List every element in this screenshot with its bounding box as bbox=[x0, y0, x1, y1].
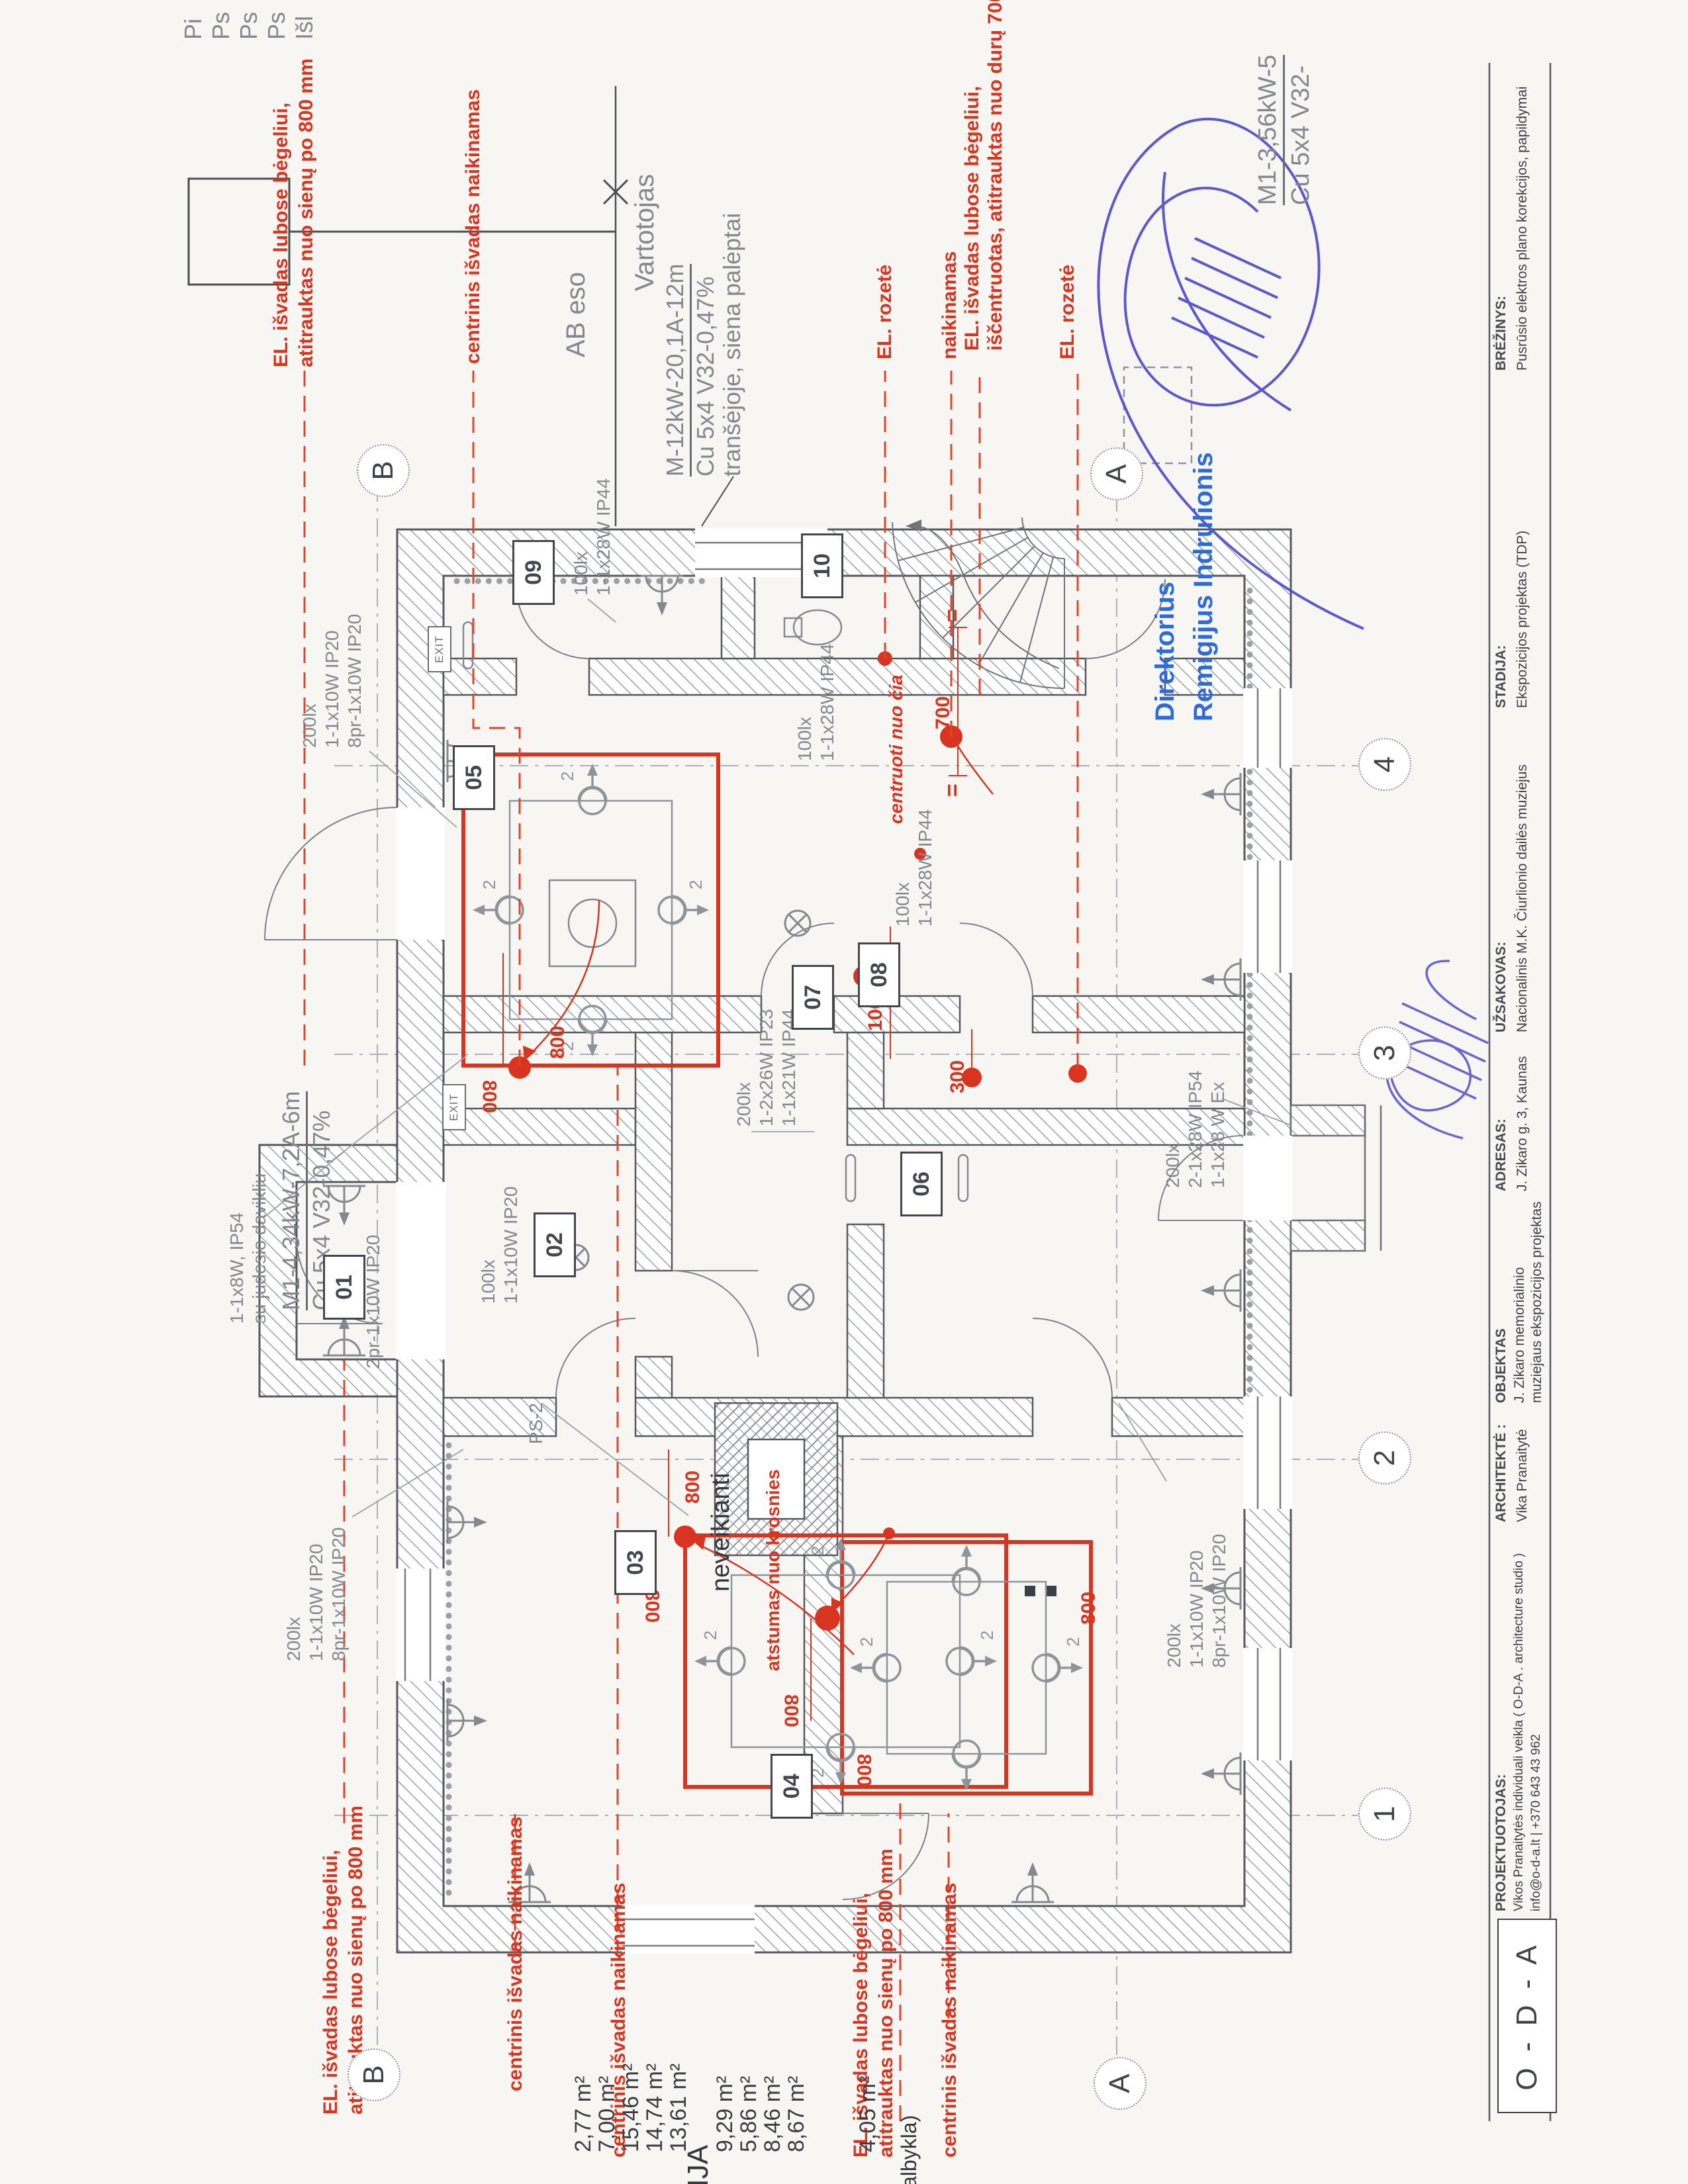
grid-bubble-4: 4 bbox=[1358, 738, 1411, 791]
scanned-drawing-page: 22 22 22 22 22 bbox=[0, 0, 1688, 2184]
oda-logo: O - D - A bbox=[1497, 1919, 1557, 2113]
dim-700: 700 bbox=[932, 696, 955, 729]
svg-text:2: 2 bbox=[479, 880, 499, 889]
tb-stadija-value: Ekspozicijos projektas (TDP) bbox=[1515, 531, 1530, 708]
stove-disabled-label: neveikianti bbox=[707, 1473, 735, 1592]
vestibule-lamp-label: 2pr-1x10W IP20 bbox=[363, 1235, 383, 1369]
area-row: 8,67 m² bbox=[784, 2076, 809, 2152]
red-leader-arcs bbox=[0, 743, 993, 2184]
lighting-label: 200lx bbox=[1164, 1623, 1184, 1668]
room-number-01: 01 bbox=[323, 1255, 365, 1320]
floor-plan-drawing: 22 22 22 22 22 bbox=[0, 0, 1688, 2184]
note-rozete-2: EL. rozetė bbox=[1056, 265, 1079, 359]
feeder-m2-1: M1-3,56kW-5 bbox=[1254, 55, 1282, 205]
feeder-m1-1: M1-4,34kW-7,2A-6m bbox=[278, 1091, 305, 1310]
feeder-m2-2: Cu 5x4 V32- bbox=[1287, 66, 1315, 205]
svg-text:2: 2 bbox=[700, 1631, 720, 1640]
motion-lamp-label-1: 1-1x8W, IP54 bbox=[226, 1212, 247, 1324]
lighting-label: 1-1x28W IP44 bbox=[817, 644, 837, 761]
lighting-label: 200lx bbox=[283, 1617, 304, 1661]
room-number-02: 02 bbox=[534, 1212, 576, 1277]
dim-800: 800 bbox=[547, 1026, 569, 1059]
lighting-label: 1-1x10W IP20 bbox=[306, 1544, 326, 1661]
lighting-label: 1-1x28W IP44 bbox=[915, 809, 935, 927]
tb-uzsakovas-label: UŽSAKOVAS: bbox=[1493, 942, 1509, 1032]
room-number-05: 05 bbox=[453, 745, 495, 810]
tb-brezinys-label: BRĖŽINYS: bbox=[1493, 296, 1509, 371]
grid-bubble-a-right: A bbox=[1090, 447, 1143, 500]
dim-eq: = bbox=[940, 609, 965, 622]
tb-projektuotojas-label: PROJEKTUOTOJAS: bbox=[1493, 1774, 1509, 1911]
lighting-label: 1-2x26W IP23 bbox=[756, 1009, 776, 1126]
tb-objektas-value2: muziejaus ekspozicijos projektas bbox=[1529, 1201, 1545, 1403]
note-rail-top-1: EL. išvadas lubose bėgeliui, bbox=[270, 103, 293, 367]
svg-text:2: 2 bbox=[686, 880, 706, 889]
stamp-name: Remigijus Indrulionis bbox=[1189, 452, 1219, 721]
grid-bubble-a-left: A bbox=[1094, 2057, 1147, 2110]
room-number-07: 07 bbox=[792, 965, 834, 1030]
note-central-left-1: centrinis išvadas naikinamas bbox=[504, 1817, 527, 2091]
tb-adresas-label: ADRESAS: bbox=[1493, 1118, 1509, 1191]
area-row: 8,46 m² bbox=[760, 2076, 785, 2152]
lighting-label: 200lx bbox=[299, 704, 320, 748]
lighting-label: 8pr-1x10W IP20 bbox=[1209, 1534, 1229, 1668]
room-number-09: 09 bbox=[512, 540, 555, 605]
note-rozete-1: EL. rozetė bbox=[874, 265, 896, 359]
note-rail2-1: EL. išvadas lubose bėgeliui, bbox=[961, 86, 984, 351]
area-row: 7,00 m² bbox=[594, 2076, 620, 2152]
note-rail2-2: iščentruotas, atitrauktas nuo durų 700 m… bbox=[984, 0, 1007, 351]
dim-800: 800 bbox=[478, 1080, 500, 1113]
label-vartotojas: Vartotojas bbox=[630, 174, 660, 291]
room-name-cut: albykla) bbox=[898, 2115, 921, 2184]
area-row: 5,86 m² bbox=[736, 2076, 761, 2152]
grid-bubble-1: 1 bbox=[1358, 1788, 1411, 1841]
note-naikinamas: naikinamas bbox=[939, 251, 961, 359]
lighting-label: 8pr-1x10W IP20 bbox=[344, 614, 365, 748]
porch bbox=[1291, 1105, 1381, 1251]
grid-bubble-2: 2 bbox=[1358, 1432, 1411, 1484]
note-rail-top-2: atitrauktas nuo sienų po 800 mm bbox=[295, 58, 318, 367]
area-row: 15,46 m² bbox=[618, 2064, 643, 2152]
note-centruoti: centruoti nuo čia bbox=[886, 674, 906, 824]
room-number-04: 04 bbox=[771, 1754, 813, 1819]
lighting-label: 200lx bbox=[1162, 1144, 1183, 1188]
area-row: 13,61 m² bbox=[666, 2064, 691, 2152]
dim-800: 800 bbox=[780, 1694, 802, 1727]
lighting-label: 100lx bbox=[478, 1259, 498, 1304]
lighting-label: 1-1x28W IP44 bbox=[593, 478, 614, 596]
grid-bubble-b-right: B bbox=[357, 444, 410, 497]
tb-brezinys-value: Pusrūsio elektros plano korekcijos, papi… bbox=[1515, 86, 1530, 371]
room-number-06: 06 bbox=[900, 1152, 943, 1216]
svg-text:2: 2 bbox=[977, 1631, 997, 1640]
room-number-08: 08 bbox=[858, 942, 900, 1007]
svg-text:2: 2 bbox=[857, 1637, 876, 1647]
note-rail-left-1: EL. išvadas lubose bėgeliui, bbox=[320, 1850, 342, 2115]
tb-architekte-label: ARCHITEKTĖ : bbox=[1493, 1424, 1509, 1522]
tb-stadija-label: STADIJA: bbox=[1493, 645, 1509, 708]
legend-cut-item: Ps bbox=[208, 12, 234, 40]
legend-cut-item: Ps bbox=[236, 12, 262, 40]
area-row: 14,74 m² bbox=[642, 2064, 667, 2152]
grid-bubble-b-left: B bbox=[348, 2048, 400, 2101]
dim-800: 800 bbox=[853, 1754, 875, 1787]
room-number-03: 03 bbox=[614, 1530, 657, 1595]
drawing-sheet: 22 22 22 22 22 bbox=[0, 0, 1688, 2184]
tb-architekte-value: Vika Pranaitytė bbox=[1515, 1429, 1530, 1522]
tb-objektas-label: OBJEKTAS bbox=[1493, 1328, 1509, 1403]
legend-cut-item: Išl bbox=[291, 16, 318, 40]
tb-uzsakovas-value: Nacionalinis M.K. Čiurlionio dailės muzi… bbox=[1515, 764, 1530, 1032]
note-atstumas: atstumas nuo krosnies bbox=[763, 1469, 783, 1671]
legend-cut-item: Ps bbox=[263, 12, 290, 40]
lighting-label: 1-1x10W IP20 bbox=[322, 631, 342, 748]
lighting-label: 100lx bbox=[571, 551, 591, 596]
lighting-label: 8pr-1x10W IP20 bbox=[328, 1527, 349, 1661]
area-row: 9,29 m² bbox=[712, 2076, 737, 2152]
lighting-label: 1-1x10W IP20 bbox=[1186, 1551, 1207, 1668]
dim-eq: = bbox=[940, 784, 965, 797]
tb-objektas-value1: J. Zikaro memorialinio bbox=[1512, 1267, 1528, 1403]
lighting-label: 1-1x10W IP20 bbox=[500, 1187, 521, 1304]
dim-300: 300 bbox=[947, 1060, 969, 1093]
feeder-main-2: Cu 5x4 V32-0,47% bbox=[692, 277, 719, 477]
dim-800: 800 bbox=[682, 1471, 704, 1504]
stamp-role: Direktorius bbox=[1150, 582, 1180, 721]
area-row: 2,77 m² bbox=[571, 2076, 596, 2152]
tb-projektuotojas-value2: info@o-d-a.lt | +370 643 43 962 bbox=[1529, 1734, 1544, 1911]
exit-sign: EXIT bbox=[442, 1084, 466, 1130]
svg-text:2: 2 bbox=[1063, 1637, 1083, 1647]
note-central-top: centrinis išvadas naikinamas bbox=[462, 89, 485, 364]
exit-sign: EXIT bbox=[428, 626, 451, 672]
feeder-main-1: M-12kW-20,1A-12m bbox=[662, 264, 688, 477]
track-existing-label: PS-2 bbox=[526, 1403, 546, 1444]
tb-adresas-value: J. Zikaro g. 3, Kaunas bbox=[1515, 1056, 1530, 1191]
dim-800: 800 bbox=[1078, 1592, 1100, 1625]
room-number-10: 10 bbox=[801, 533, 843, 598]
lighting-label: 100lx bbox=[892, 882, 913, 927]
svg-text:2: 2 bbox=[808, 1546, 827, 1555]
motion-lamp-label-2: su judesio davikliu bbox=[249, 1173, 269, 1324]
area-row: 4,05 m² bbox=[855, 2076, 880, 2152]
vestibule-opening bbox=[396, 1182, 446, 1359]
grid-bubble-3: 3 bbox=[1358, 1026, 1411, 1079]
lighting-label: 200lx bbox=[733, 1082, 754, 1126]
legend-cut-item: Pi bbox=[180, 19, 207, 40]
lighting-label: 1-1x28 W Ex bbox=[1207, 1082, 1228, 1188]
label-ab-eso: AB eso bbox=[561, 272, 591, 357]
tb-projektuotojas-value1: Vikos Pranaitytės individuali veikla ( O… bbox=[1512, 1553, 1526, 1911]
lighting-label: 100lx bbox=[794, 717, 815, 761]
note-central-bottom: centrinis išvadas naikinamas bbox=[939, 1883, 961, 2158]
feeder-main-3: tranšėjoje, siena palėptai bbox=[719, 213, 745, 477]
svg-text:2: 2 bbox=[557, 772, 577, 781]
lighting-label: 2-1x28W IP54 bbox=[1185, 1071, 1205, 1188]
